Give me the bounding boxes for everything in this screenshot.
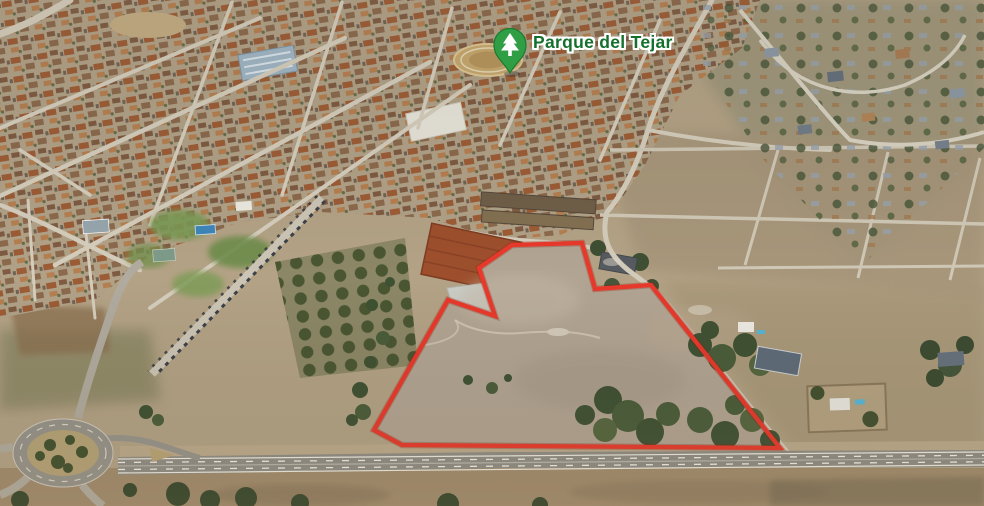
aerial-imagery: [0, 0, 984, 506]
pin-shadow: [504, 71, 520, 77]
satellite-map-view[interactable]: Parque del Tejar: [0, 0, 984, 506]
place-label[interactable]: Parque del Tejar: [533, 32, 673, 53]
vignette-overlay: [0, 0, 984, 506]
